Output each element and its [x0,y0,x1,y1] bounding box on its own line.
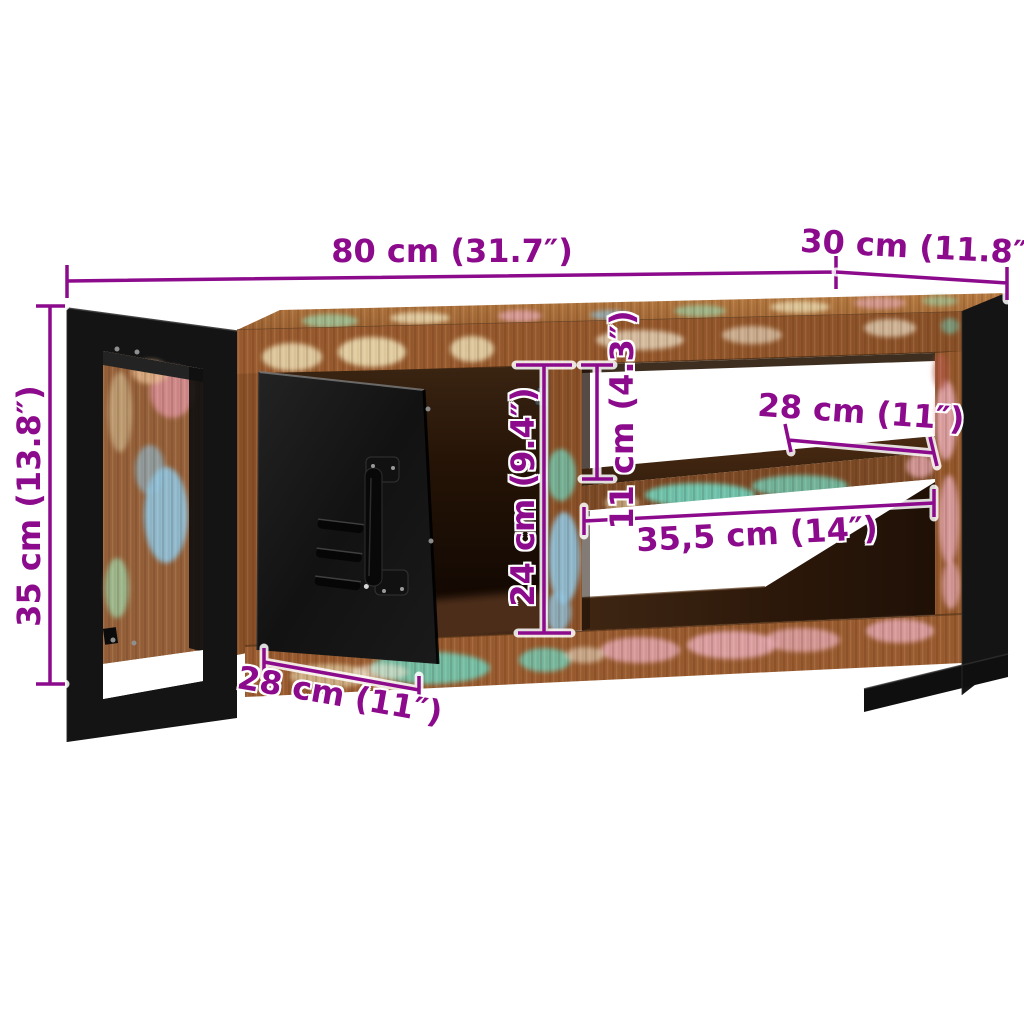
front-right-stile [933,351,962,616]
product-dimension-image: 80 cm (31.7″) 30 cm (11.8″) 35 cm (13.8″… [0,0,1024,1024]
height-dimension-label: 35 cm (13.8″) [13,385,45,627]
top-shelf-height-dimension-label: 11 cm (4.3″) [606,310,638,529]
frame-screw [132,641,137,646]
divider-panel [545,365,582,633]
door-screw [426,407,431,412]
width-dimension-label: 80 cm (31.7″) [331,235,573,267]
interior-height-dimension-label: 24 cm (9.4″) [507,387,539,606]
left-metal-frame [67,308,237,742]
frame-screw [111,638,116,643]
frame-screw [135,350,140,355]
left-side-wood-panel [103,351,203,664]
door-screw [429,539,434,544]
frame-screw [115,347,120,352]
frame-hinge-tab [103,627,118,645]
cabinet-door [257,372,438,664]
